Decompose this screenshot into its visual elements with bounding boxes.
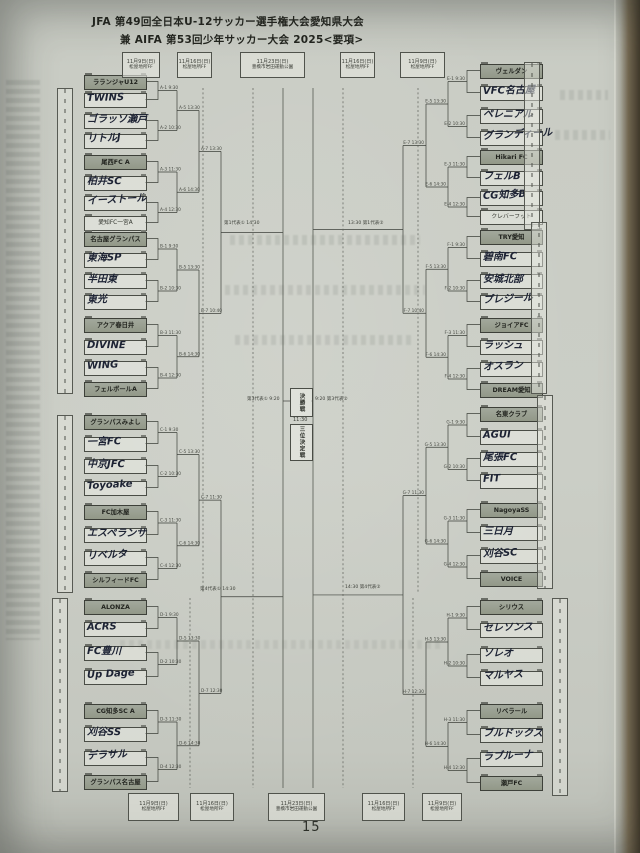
- match-time-label: A-1 9:30: [160, 85, 178, 91]
- handwritten-team-name: Toyoake: [87, 477, 149, 494]
- team-box-G6: 三日月: [480, 526, 543, 541]
- team-box-D1: ALONZA: [84, 600, 147, 615]
- match-time-label: H-5 13:30: [425, 637, 447, 643]
- schedule-box: 11月23日(日)豊橋市岩田運動公園: [268, 793, 325, 821]
- match-time-label: H-1 9:30: [446, 613, 465, 619]
- photo-of-bracket-page: JFA 第49回全日本U-12サッカー選手権大会愛知県大会 A-1 9:30A-…: [0, 0, 640, 853]
- team-box-D6: 刈谷SS: [84, 727, 147, 742]
- match-time-label: A-4 12:30: [160, 207, 181, 213]
- match-time-label: B-3 11:30: [160, 330, 181, 336]
- team-box-G1: 名東クラブ: [480, 407, 543, 422]
- printed-team-name: アクア春日井: [85, 319, 146, 332]
- paper-page: JFA 第49回全日本U-12サッカー選手権大会愛知県大会 A-1 9:30A-…: [0, 0, 640, 853]
- match-time-label: F-6 14:30: [425, 352, 446, 358]
- handwritten-team-name: ソレオ: [483, 647, 544, 661]
- bracket-line: [467, 237, 480, 259]
- handwritten-team-name: Up Dage: [87, 666, 149, 683]
- handwritten-team-name: 東光: [87, 291, 149, 308]
- match-time-label: G-5 13:30: [425, 442, 447, 448]
- team-box-G2: AGUI: [480, 430, 543, 445]
- block-strip-left: [57, 415, 73, 593]
- match-time-label: E-1 9:30: [447, 76, 465, 82]
- schedule-box: 11月16日(日)松屋地所FF: [177, 52, 212, 78]
- match-time-label: D-7 12:30: [201, 688, 223, 694]
- schedule-venue: 松屋地所FF: [411, 65, 435, 71]
- printed-team-name: VOICE: [481, 573, 542, 586]
- schedule-venue: 豊橋市岩田運動公園: [276, 807, 317, 813]
- match-time-label: H-2 10:30: [444, 661, 466, 667]
- team-box-C5: FC加木屋: [84, 505, 147, 520]
- handwritten-team-name: DIVINE: [87, 339, 148, 353]
- match-time-label: F-2 10:30: [444, 286, 465, 292]
- schedule-venue: 松屋地所FF: [372, 807, 396, 813]
- handwritten-team-name: 柏井SC: [87, 175, 148, 189]
- printed-team-name: リベラール: [481, 705, 542, 718]
- bracket-line: [467, 759, 480, 783]
- block-strip-right: [531, 222, 547, 394]
- qualifier-label-top-left: 第1代表① 14:30: [224, 220, 260, 226]
- match-time-label: C-1 9:30: [160, 427, 179, 433]
- match-time-label: F-4 12:30: [444, 374, 465, 380]
- schedule-box: 11月9日(日)松屋地所FF: [128, 793, 179, 821]
- qualifier-label-top-right: 13:30 第1代表②: [348, 220, 384, 226]
- bracket-line: [467, 510, 480, 533]
- book-binding-shadow: [614, 0, 640, 853]
- team-box-C2: 一宮FC: [84, 437, 147, 452]
- schedule-box: 11月16日(日)松屋地所FF: [190, 793, 234, 821]
- handwritten-team-name: 刈谷SS: [87, 726, 148, 740]
- match-time-label: G-2 10:30: [444, 464, 466, 470]
- schedule-box: 11月16日(日)松屋地所FF: [362, 793, 405, 821]
- match-time-label: C-2 10:30: [160, 471, 181, 477]
- match-time-label: B-5 13:30: [179, 265, 200, 271]
- match-time-label: G-1 9:30: [446, 420, 465, 426]
- handwritten-team-name: AGUI: [483, 428, 544, 443]
- handwritten-team-name: 三日月: [483, 525, 544, 539]
- team-box-C8: シルフィードFC: [84, 573, 147, 588]
- team-box-B1: 名古屋グランパス: [84, 232, 147, 247]
- handwritten-team-name: FIT: [483, 470, 545, 487]
- handwritten-team-name: マルヤス: [483, 667, 545, 684]
- team-box-A6: 柏井SC: [84, 176, 147, 191]
- printed-team-name: 尾西FC A: [85, 156, 146, 169]
- bracket-line: [467, 325, 480, 347]
- handwritten-team-name: セレソンス: [483, 621, 544, 636]
- handwritten-team-name: 半田東: [87, 273, 148, 287]
- block-strip-left: [52, 598, 68, 792]
- printed-team-name: NagoyaSS: [481, 504, 542, 517]
- match-time-label: C-4 12:30: [160, 563, 181, 569]
- bracket-line: [467, 459, 480, 481]
- handwritten-team-name: エスペランサ: [87, 527, 148, 541]
- match-time-label: F-1 9:30: [447, 242, 465, 248]
- final-match-box: 決勝戦: [290, 388, 313, 417]
- team-box-H3: ソレオ: [480, 648, 543, 663]
- match-time-label: C-3 11:30: [160, 518, 181, 524]
- handwritten-team-name: ACRS: [87, 620, 148, 635]
- final-match-label: 決勝戦: [298, 393, 306, 413]
- page-number: 15: [302, 820, 321, 835]
- printed-team-name: グランパスみよし: [85, 416, 146, 429]
- handwritten-team-name: イーストール: [87, 192, 149, 209]
- semifinal-left-label: 第3代表① 9:20: [247, 396, 280, 402]
- handwritten-team-name: 刈谷SC: [483, 545, 545, 562]
- schedule-venue: 松屋地所FF: [183, 65, 207, 71]
- bracket-line: [467, 116, 480, 138]
- bracket-line: [467, 198, 480, 217]
- bracket-line: [467, 607, 480, 630]
- match-time-label: F-7 10:40: [403, 308, 424, 314]
- handwritten-team-name: デラサル: [87, 747, 149, 764]
- team-box-D5: CG知多SC A: [84, 704, 147, 719]
- match-time-label: B-4 12:30: [160, 373, 181, 379]
- schedule-venue: 松屋地所FF: [430, 807, 454, 813]
- team-box-H6: ブルドックス: [480, 728, 543, 743]
- team-box-A4: リトルJ: [84, 134, 147, 149]
- match-time-label: G-6 14:30: [425, 539, 447, 545]
- block-strip-right: [537, 395, 553, 589]
- schedule-venue: 松屋地所FF: [129, 65, 153, 71]
- team-box-A5: 尾西FC A: [84, 155, 147, 170]
- match-time-label: G-3 11:30: [444, 516, 466, 522]
- match-time-label: F-5 13:30: [425, 264, 446, 270]
- team-box-G4: FIT: [480, 474, 543, 489]
- match-time-label: A-5 13:30: [179, 105, 200, 111]
- team-box-D3: FC豊川: [84, 646, 147, 661]
- handwritten-team-name: 東海SP: [87, 251, 148, 266]
- match-time-label: D-2 10:30: [160, 659, 182, 665]
- team-box-H1: シリウス: [480, 600, 543, 615]
- printed-team-name: グランパス名古屋: [85, 776, 146, 789]
- tournament-subtitle: 兼 AIFA 第53回少年サッカー大会 2025<要項>: [120, 32, 363, 47]
- match-time-label: B-6 14:30: [179, 351, 200, 357]
- team-box-B2: 東海SP: [84, 253, 147, 268]
- bracket-line: [467, 655, 480, 678]
- match-time-label: H-4 12:30: [444, 765, 466, 771]
- match-time-label: A-2 10:30: [160, 125, 181, 131]
- team-box-G3: 尾張FC: [480, 452, 543, 467]
- match-time-label: A-3 11:30: [160, 167, 181, 173]
- match-time-label: B-7 10:40: [201, 308, 222, 314]
- schedule-box: 11月23日(日)豊橋市岩田運動公園: [240, 52, 305, 78]
- team-box-A8: 愛知FC一宮A: [84, 216, 147, 231]
- final-match-time: 11:30: [293, 417, 307, 423]
- team-box-D4: Up Dage: [84, 670, 147, 685]
- team-box-B5: アクア春日井: [84, 318, 147, 333]
- match-time-label: F-3 11:30: [444, 330, 465, 336]
- team-box-A2: TWINS: [84, 93, 147, 108]
- team-box-B4: 東光: [84, 295, 147, 310]
- bracket-line: [467, 71, 480, 93]
- team-box-B8: フェルボールA: [84, 382, 147, 397]
- match-time-label: G-4 12:30: [444, 562, 466, 568]
- team-box-G5: NagoyaSS: [480, 503, 543, 518]
- team-box-H5: リベラール: [480, 704, 543, 719]
- schedule-box: 11月16日(日)松屋地所FF: [340, 52, 375, 78]
- third-place-box: 三位決定戦: [290, 424, 313, 461]
- printed-team-name: シルフィードFC: [85, 574, 146, 587]
- handwritten-team-name: リトルJ: [87, 130, 149, 147]
- block-strip-right: [524, 62, 540, 230]
- block-strip-left: [57, 88, 73, 394]
- printed-team-name: 愛知FC一宮A: [85, 217, 146, 230]
- schedule-venue: 松屋地所FF: [142, 807, 166, 813]
- printed-team-name: CG知多SC A: [85, 705, 146, 718]
- match-time-label: C-7 11:30: [201, 495, 222, 501]
- schedule-venue: 松屋地所FF: [346, 65, 370, 71]
- team-box-G8: VOICE: [480, 572, 543, 587]
- team-box-C7: リベルタ: [84, 551, 147, 566]
- schedule-venue: 豊橋市岩田運動公園: [252, 65, 293, 71]
- match-time-label: E-6 14:30: [425, 182, 446, 188]
- handwritten-team-name: FC豊川: [87, 645, 148, 659]
- bracket-line: [467, 157, 480, 178]
- match-time-label: E-5 13:30: [425, 99, 446, 105]
- printed-team-name: FC加木屋: [85, 506, 146, 519]
- team-box-B6: DIVINE: [84, 340, 147, 355]
- handwritten-team-name: ゴラッソ瀬戸: [87, 113, 148, 127]
- team-box-C1: グランパスみよし: [84, 415, 147, 430]
- team-box-C3: 中京JFC: [84, 459, 147, 474]
- qualifier-label-bottom-left: 第4代表① 14:30: [200, 586, 236, 592]
- bracket-line: [467, 281, 480, 302]
- team-box-B3: 半田東: [84, 274, 147, 289]
- printed-team-name: 名古屋グランパス: [85, 233, 146, 246]
- printed-team-name: フェルボールA: [85, 383, 146, 396]
- semifinal-right-label: 9:20 第3代表②: [315, 396, 348, 402]
- team-box-H8: 瀬戸FC: [480, 776, 543, 791]
- match-time-label: G-7 11:30: [403, 490, 425, 496]
- match-time-label: H-3 11:30: [444, 717, 466, 723]
- handwritten-team-name: ブルドックス: [483, 727, 544, 741]
- match-time-label: B-2 10:30: [160, 286, 181, 292]
- qualifier-label-bottom-right: 14:30 第4代表②: [345, 584, 381, 590]
- match-time-label: D-3 11:30: [160, 717, 182, 723]
- printed-team-name: シリウス: [481, 601, 542, 614]
- team-box-A7: イーストール: [84, 196, 147, 211]
- handwritten-team-name: 中京JFC: [87, 458, 148, 472]
- team-box-A3: ゴラッソ瀬戸: [84, 114, 147, 129]
- third-place-label: 三位決定戦: [298, 426, 306, 459]
- handwritten-team-name: リベルタ: [87, 547, 149, 564]
- printed-team-name: 名東クラブ: [481, 408, 542, 421]
- schedule-box: 11月9日(日)松屋地所FF: [422, 793, 462, 821]
- printed-team-name: ALONZA: [85, 601, 146, 614]
- bracket-line: [467, 414, 480, 437]
- team-box-H2: セレソンス: [480, 623, 543, 638]
- schedule-venue: 松屋地所FF: [200, 807, 224, 813]
- team-box-H7: ラブルーナ: [480, 752, 543, 767]
- handwritten-team-name: WING: [87, 357, 149, 374]
- match-time-label: E-3 11:30: [444, 162, 465, 168]
- team-box-G7: 刈谷SC: [480, 549, 543, 564]
- match-time-label: H-7 12:30: [403, 689, 425, 695]
- block-strip-right: [552, 598, 568, 796]
- match-time-label: C-5 13:30: [179, 449, 200, 455]
- team-box-D7: デラサル: [84, 751, 147, 766]
- match-time-label: D-4 12:30: [160, 764, 182, 770]
- handwritten-team-name: ラブルーナ: [483, 748, 545, 765]
- printed-team-name: 瀬戸FC: [481, 777, 542, 790]
- handwritten-team-name: 尾張FC: [483, 451, 544, 465]
- match-time-label: D-1 9:30: [160, 612, 179, 618]
- team-box-D8: グランパス名古屋: [84, 775, 147, 790]
- bracket-line: [467, 556, 480, 579]
- team-box-C4: Toyoake: [84, 481, 147, 496]
- match-time-label: C-6 14:30: [179, 540, 200, 546]
- match-time-label: B-1 9:30: [160, 244, 179, 250]
- match-time-label: E-2 10:30: [444, 121, 465, 127]
- schedule-box: 11月9日(日)松屋地所FF: [400, 52, 445, 78]
- team-box-B7: WING: [84, 361, 147, 376]
- team-box-H4: マルヤス: [480, 671, 543, 686]
- bracket-line: [467, 711, 480, 735]
- bracket-line: [467, 369, 480, 390]
- handwritten-team-name: TWINS: [87, 91, 148, 106]
- match-time-label: A-7 13:30: [201, 146, 222, 152]
- match-time-label: A-6 14:30: [179, 187, 200, 193]
- match-time-label: H-6 14:30: [425, 741, 447, 747]
- match-time-label: E-4 12:30: [444, 202, 465, 208]
- team-box-D2: ACRS: [84, 622, 147, 637]
- handwritten-team-name: 一宮FC: [87, 435, 148, 450]
- match-time-label: E-7 13:30: [403, 140, 424, 146]
- team-box-C6: エスペランサ: [84, 528, 147, 543]
- schedule-box: 11月9日(日)松屋地所FF: [122, 52, 160, 78]
